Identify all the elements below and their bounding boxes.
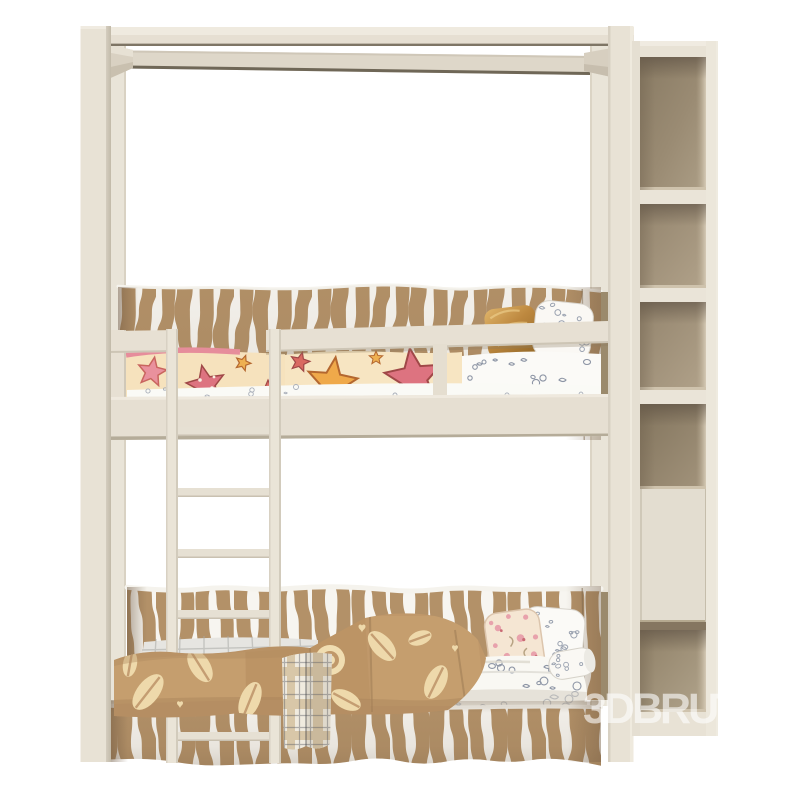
svg-text:3DBRUTI: 3DBRUTI xyxy=(583,685,749,733)
